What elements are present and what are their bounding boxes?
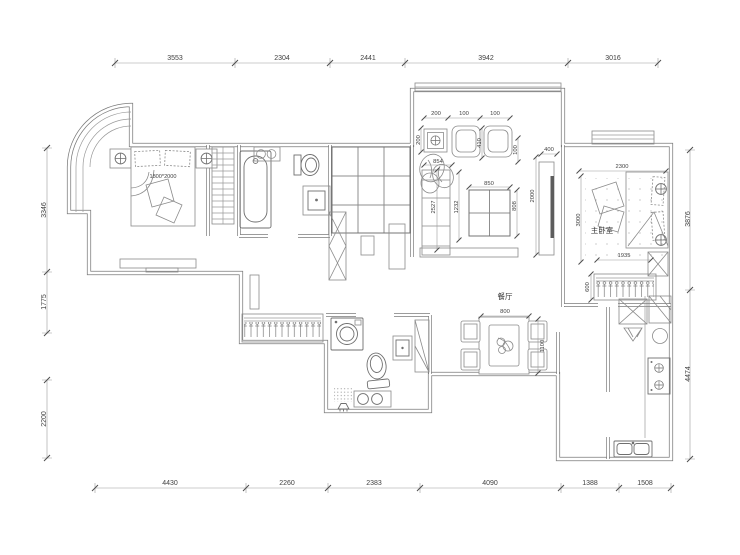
dim-label: 1100 [540,340,546,352]
bed-size-label: 1800*2000 [149,174,176,180]
burner-icon [655,381,664,390]
dim-label: 400 [544,147,554,153]
floor-plan-page: 1800*2000 [0,0,740,555]
dining-table [479,317,529,374]
hallway-fixtures [250,212,405,309]
coffee-table [469,190,510,236]
vanity-double-basin [354,391,391,407]
dining-room-label: 餐厅 [498,292,513,301]
dim-label: 2441 [360,55,376,62]
dim-label: 854 [433,159,443,165]
toilet [294,155,319,176]
dim-label: 410 [477,138,483,148]
dim-top: 3553 2304 2441 3942 3016 [112,55,661,68]
dim-label: 3553 [167,55,183,62]
dim-label: 3876 [685,211,692,227]
washbasin [303,186,330,215]
dim-label: 3346 [41,202,48,218]
dim-label: 2260 [279,480,295,487]
dim-label: 3016 [605,55,621,62]
dim-label: 100 [459,111,469,117]
corner-shelf [415,320,429,372]
dim-label: 2300 [616,164,629,170]
dim-label: 3000 [576,214,582,227]
dim-label: 1508 [637,480,653,487]
burner-icon [655,364,664,373]
lamp-icon [656,184,667,195]
master-bedroom-label: 主卧室 [591,225,614,235]
flower-icon [431,136,440,145]
bed [131,147,195,226]
dim-label: 808 [512,201,518,211]
floor-drain-icon [338,404,349,412]
lamp-icon [656,235,667,246]
tv-cabinet [539,162,554,255]
dim-label: 2527 [431,201,437,214]
dim-label: 2304 [274,55,290,62]
dim-label: 2383 [366,480,382,487]
outer-walls [69,90,671,459]
bathroom-bottom [331,318,429,412]
shower-drain-area [334,387,352,402]
dining-chair [528,321,547,342]
dim-label: 2200 [41,411,48,427]
kitchen [614,296,671,457]
master-bedroom: 主卧室 [585,172,668,300]
bedroom-window-sill [120,259,196,272]
dim-label: 200 [416,135,422,145]
dim-label: 3942 [478,55,494,62]
dim-label: 1775 [41,294,48,310]
dining-chair [461,321,480,342]
dim-label: 100 [490,111,500,117]
dim-label: 2000 [530,190,536,203]
dim-label: 4474 [685,366,692,382]
toilet [364,352,390,389]
kitchen-sink [614,441,652,457]
dim-bottom: 4430 2260 2383 4090 1388 1508 [92,480,674,493]
dim-label: 4090 [482,480,498,487]
dim-label: 800 [500,309,510,315]
lamp-icon [201,153,212,164]
bedroom: 1800*2000 [110,147,217,226]
master-bedroom-window [592,131,654,144]
dim-label: 1232 [454,201,460,214]
dim-left: 3346 1775 2200 [41,145,52,461]
washing-machine [331,318,363,350]
hood-icon [624,328,642,341]
corner-cabinet [649,296,671,323]
master-wardrobe [594,274,656,300]
stove [648,358,670,394]
dim-label: 850 [484,181,494,187]
floor-plan-drawing: 1800*2000 [0,0,740,555]
tv [551,176,555,238]
dim-right: 3876 4474 [685,147,695,462]
dining-room: 餐厅 [461,292,547,374]
dim-label: 200 [431,111,441,117]
mirror-cabinet [393,336,412,360]
dim-label: 100 [513,145,519,155]
round-basin [653,329,668,344]
dim-label: 600 [585,282,591,292]
dim-label: 1388 [582,480,598,487]
fridge [619,299,647,324]
hallway-closet [242,314,323,342]
tiled-floor [332,147,410,233]
bathroom-top [240,147,330,228]
dim-label: 4430 [162,480,178,487]
dining-chair [461,349,480,370]
lamp-icon [115,153,126,164]
dim-label: 1935 [618,253,631,259]
